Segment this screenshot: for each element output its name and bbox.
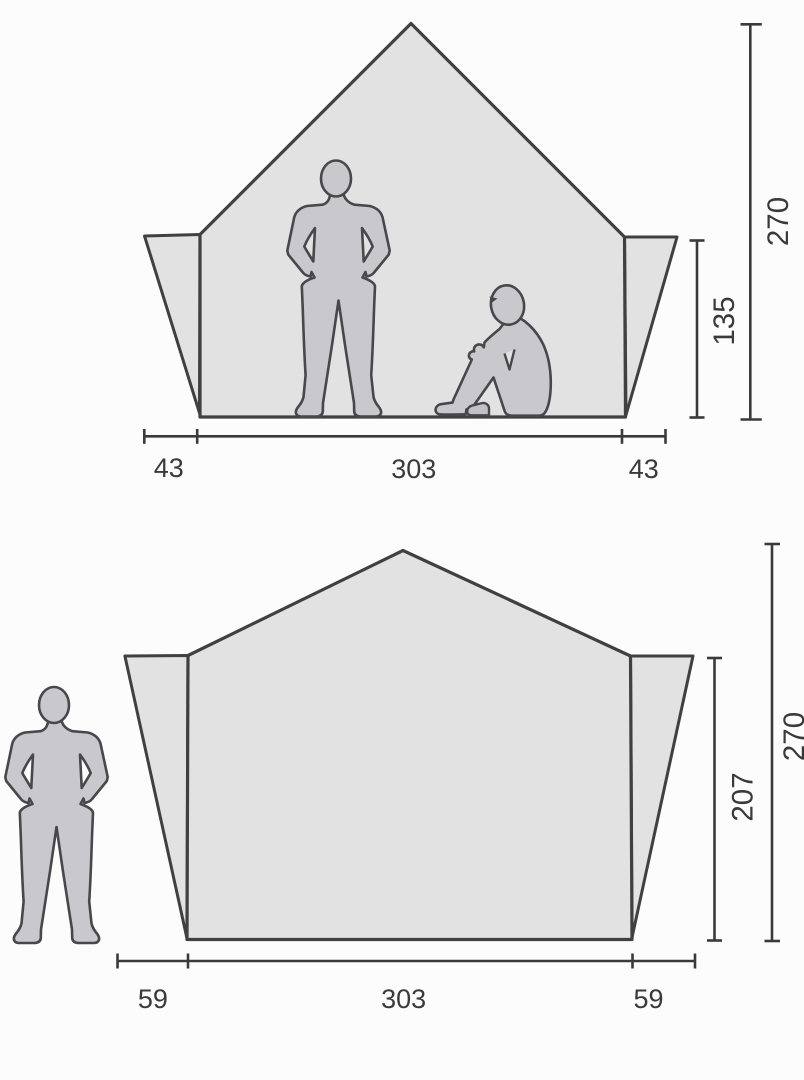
svg-text:270: 270 xyxy=(762,197,795,246)
svg-text:135: 135 xyxy=(708,296,741,345)
svg-text:59: 59 xyxy=(138,984,168,1014)
svg-text:59: 59 xyxy=(633,984,663,1014)
svg-text:303: 303 xyxy=(381,984,426,1014)
svg-text:43: 43 xyxy=(629,454,659,484)
svg-text:270: 270 xyxy=(778,712,804,761)
svg-text:207: 207 xyxy=(727,772,760,821)
svg-text:303: 303 xyxy=(391,454,436,484)
svg-text:43: 43 xyxy=(154,453,184,483)
